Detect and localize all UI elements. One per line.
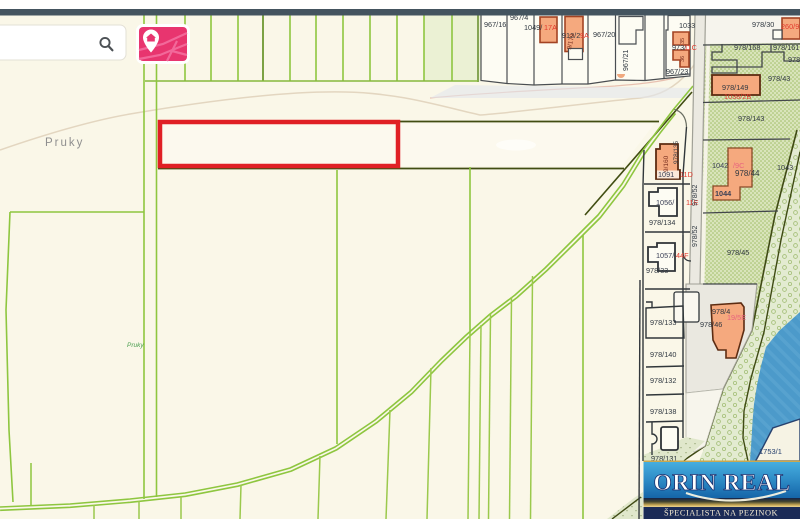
svg-text:1038/2B: 1038/2B — [724, 92, 751, 101]
svg-text:1033: 1033 — [679, 21, 695, 30]
svg-text:978/132: 978/132 — [650, 376, 676, 385]
svg-text:978/46: 978/46 — [700, 320, 722, 329]
svg-text:35: 35 — [680, 38, 686, 44]
svg-text:978/44: 978/44 — [735, 169, 760, 178]
svg-text:978/30: 978/30 — [752, 20, 774, 29]
svg-text:978/1: 978/1 — [788, 55, 800, 64]
svg-text:17A: 17A — [544, 23, 557, 32]
svg-text:260/9: 260/9 — [781, 22, 799, 31]
svg-text:/9C: /9C — [733, 161, 744, 170]
svg-text:1753/1: 1753/1 — [759, 447, 782, 456]
svg-text:36: 36 — [680, 56, 686, 62]
svg-text:978/149: 978/149 — [722, 83, 748, 92]
svg-text:978/52: 978/52 — [692, 225, 699, 247]
svg-text:1044: 1044 — [715, 189, 732, 198]
svg-text:1043: 1043 — [777, 163, 793, 172]
svg-text:1057/: 1057/ — [656, 251, 675, 260]
svg-text:978/135: 978/135 — [673, 140, 680, 164]
svg-text:978/161: 978/161 — [773, 43, 799, 52]
svg-text:978/43: 978/43 — [768, 74, 790, 83]
svg-text:9/160: 9/160 — [663, 155, 670, 172]
svg-text:967/21: 967/21 — [623, 49, 630, 71]
svg-text:44F: 44F — [676, 251, 689, 260]
svg-text:978/168: 978/168 — [734, 43, 760, 52]
svg-text:978/33: 978/33 — [646, 266, 668, 275]
svg-text:19/5E: 19/5E — [727, 313, 746, 322]
svg-text:978/45: 978/45 — [727, 248, 749, 257]
svg-text:978/52: 978/52 — [692, 184, 699, 206]
svg-text:978/133: 978/133 — [650, 318, 676, 327]
svg-text:9A: 9A — [580, 31, 589, 40]
svg-text:11D: 11D — [680, 170, 693, 179]
svg-text:ORIN REAL: ORIN REAL — [653, 470, 790, 496]
svg-text:1049/: 1049/ — [524, 23, 543, 32]
svg-text:978/134: 978/134 — [649, 218, 675, 227]
svg-text:1056/: 1056/ — [656, 198, 675, 207]
svg-text:967/23: 967/23 — [666, 67, 688, 76]
svg-text:967/16: 967/16 — [484, 20, 506, 29]
svg-text:978/138: 978/138 — [650, 407, 676, 416]
svg-text:Pruky: Pruky — [45, 137, 84, 149]
svg-text:978/140: 978/140 — [650, 350, 676, 359]
svg-text:ŠPECIALISTA NA PEZINOK: ŠPECIALISTA NA PEZINOK — [664, 509, 778, 518]
svg-text:978/143: 978/143 — [738, 114, 764, 123]
svg-text:1042: 1042 — [712, 161, 728, 170]
svg-text:967/20: 967/20 — [593, 30, 615, 39]
svg-text:Pruky: Pruky — [127, 342, 144, 349]
